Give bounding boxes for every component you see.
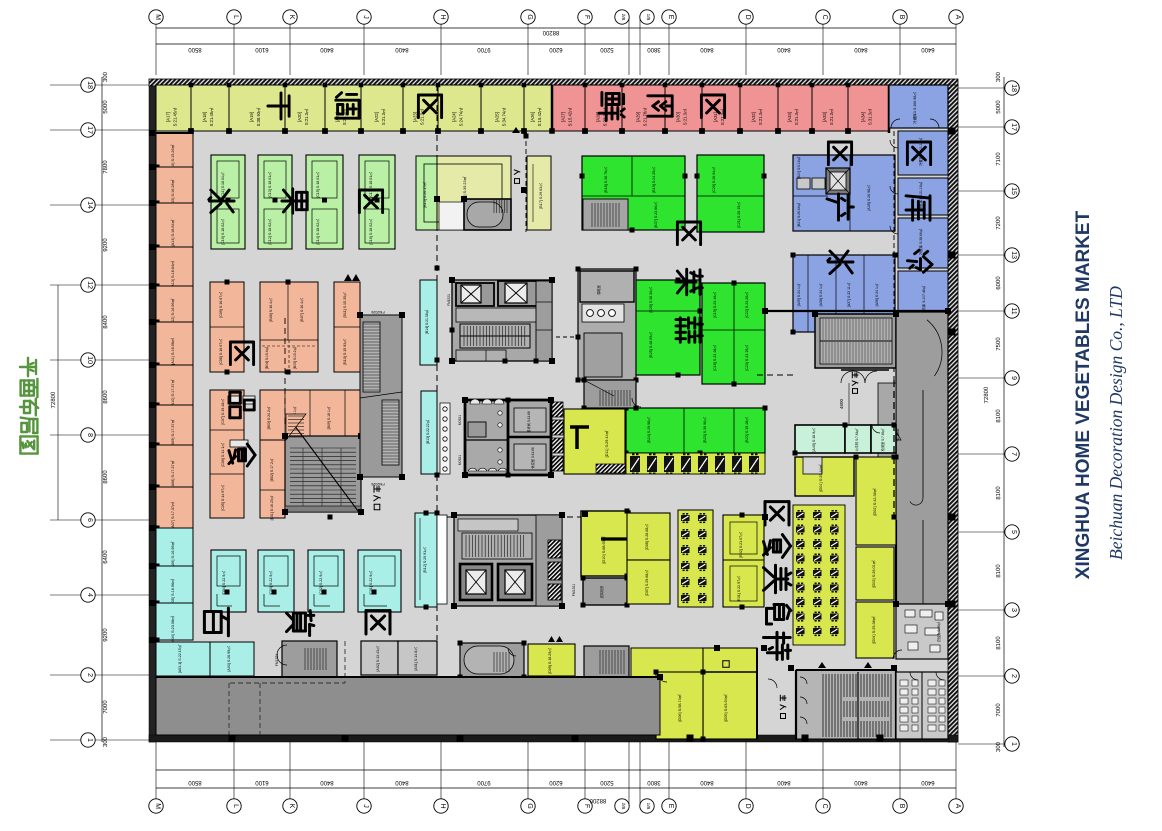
svg-text:6: 6 — [86, 518, 93, 522]
svg-text:S:24.74㎡: S:24.74㎡ — [458, 107, 464, 126]
svg-text:B: B — [898, 804, 905, 809]
svg-text:6400: 6400 — [921, 46, 935, 52]
svg-text:8400: 8400 — [103, 315, 109, 329]
svg-text:S:21.3㎡: S:21.3㎡ — [757, 108, 763, 125]
svg-text:8100: 8100 — [996, 409, 1002, 423]
svg-text:S:15.42㎡: S:15.42㎡ — [536, 107, 542, 126]
svg-text:[A09] S:17.37㎡: [A09] S:17.37㎡ — [170, 419, 175, 446]
svg-text:[A05] S:16.96㎡: [A05] S:16.96㎡ — [170, 579, 175, 606]
svg-text:[B20] S:5.16㎡: [B20] S:5.16㎡ — [796, 156, 801, 179]
svg-text:8600: 8600 — [103, 390, 109, 404]
svg-text:FM1521: FM1521 — [447, 294, 451, 306]
svg-text:送风机房: 送风机房 — [599, 586, 604, 599]
svg-text:S:38.93㎡: S:38.93㎡ — [255, 107, 261, 126]
svg-text:8400: 8400 — [700, 46, 714, 52]
svg-text:[A22]: [A22] — [374, 112, 379, 122]
svg-text:H: H — [439, 803, 446, 808]
svg-text:[D04] S:25.38㎡: [D04] S:25.38㎡ — [871, 616, 876, 643]
svg-text:[A12] S:16.96㎡: [A12] S:16.96㎡ — [170, 298, 175, 325]
svg-text:[D06] S:58.74㎡: [D06] S:58.74㎡ — [677, 694, 682, 721]
svg-text:13: 13 — [1010, 251, 1017, 259]
svg-text:[A32]: [A32] — [751, 112, 756, 122]
svg-text:A: A — [954, 15, 961, 20]
svg-text:[B09] S:18.1㎡: [B09] S:18.1㎡ — [326, 406, 331, 429]
svg-text:A: A — [954, 804, 961, 809]
svg-text:17: 17 — [1010, 123, 1017, 131]
svg-text:L: L — [232, 804, 239, 808]
svg-text:8400: 8400 — [854, 46, 868, 52]
svg-text:[A40] S:18.9㎡: [A40] S:18.9㎡ — [811, 428, 816, 452]
svg-text:9200: 9200 — [103, 238, 109, 252]
svg-text:5200: 5200 — [600, 46, 614, 52]
svg-text:[C10] S:18.02㎡: [C10] S:18.02㎡ — [220, 219, 225, 245]
svg-text:[B04] S:15.4㎡: [B04] S:15.4㎡ — [264, 346, 269, 369]
svg-text:S:21.45㎡: S:21.45㎡ — [208, 107, 214, 126]
svg-text:[A02] S:13.43㎡: [A02] S:13.43㎡ — [375, 646, 380, 672]
svg-text:J: J — [362, 804, 369, 808]
svg-text:18: 18 — [86, 81, 93, 89]
svg-text:冷冻库 S:107.48㎡: 冷冻库 S:107.48㎡ — [921, 285, 926, 314]
svg-text:H: H — [439, 14, 446, 19]
svg-text:S:21.3㎡: S:21.3㎡ — [793, 108, 799, 125]
svg-text:L: L — [232, 15, 239, 19]
svg-text:4600: 4600 — [839, 398, 844, 409]
svg-text:1/B: 1/B — [646, 803, 651, 810]
svg-text:[A23]: [A23] — [413, 112, 418, 122]
svg-text:6200: 6200 — [549, 779, 563, 785]
svg-text:公平秤 S:7.64㎡: 公平秤 S:7.64㎡ — [854, 428, 859, 452]
svg-text:[A14] S:18.64㎡: [A14] S:18.64㎡ — [170, 219, 175, 246]
svg-text:[A15] S:16.28㎡: [A15] S:16.28㎡ — [170, 179, 175, 206]
svg-text:[B24] S:29.98㎡: [B24] S:29.98㎡ — [646, 417, 651, 443]
svg-text:6100: 6100 — [255, 46, 269, 52]
svg-text:[B22] S:15.48㎡: [B22] S:15.48㎡ — [744, 417, 749, 443]
svg-text:总经办 S:36㎡: 总经办 S:36㎡ — [936, 621, 941, 642]
svg-text:[D05] S:63.94㎡: [D05] S:63.94㎡ — [723, 694, 728, 721]
svg-text:[C21] S:26.15㎡: [C21] S:26.15㎡ — [736, 202, 741, 228]
svg-text:D: D — [744, 803, 751, 808]
svg-text:7: 7 — [1010, 452, 1017, 456]
svg-text:8400: 8400 — [777, 779, 791, 785]
svg-text:E: E — [667, 804, 674, 809]
svg-text:[B25] S:48.09㎡: [B25] S:48.09㎡ — [648, 332, 653, 358]
svg-text:FM2026: FM2026 — [371, 482, 384, 486]
svg-text:[A36] S:24.1㎡: [A36] S:24.1㎡ — [874, 283, 879, 306]
svg-text:D: D — [744, 14, 751, 19]
svg-text:[A30]: [A30] — [676, 112, 681, 122]
svg-text:8400: 8400 — [777, 46, 791, 52]
svg-text:[C23] S:23.15㎡: [C23] S:23.15㎡ — [744, 345, 749, 371]
svg-text:8100: 8100 — [996, 564, 1002, 578]
svg-text:[A33]: [A33] — [787, 112, 792, 122]
svg-text:[A37] S:22.11㎡: [A37] S:22.11㎡ — [846, 282, 851, 307]
svg-text:11: 11 — [1010, 307, 1017, 315]
svg-text:15: 15 — [1010, 187, 1017, 195]
svg-text:8: 8 — [86, 433, 93, 437]
svg-text:[A35] S:26.98㎡: [A35] S:26.98㎡ — [866, 185, 871, 211]
svg-text:300: 300 — [103, 71, 109, 82]
svg-text:S:34.74㎡: S:34.74㎡ — [501, 107, 507, 126]
svg-text:1: 1 — [1010, 742, 1017, 746]
svg-text:[D02] S:42.36㎡: [D02] S:42.36㎡ — [872, 488, 877, 515]
svg-text:[A08] S:17.37㎡: [A08] S:17.37㎡ — [170, 460, 175, 487]
svg-text:[B15] S:20.17㎡: [B15] S:20.17㎡ — [422, 182, 427, 208]
svg-text:休息室 S:11.66: 休息室 S:11.66 — [530, 447, 535, 468]
svg-text:[A03-1] S:22.15㎡: [A03-1] S:22.15㎡ — [177, 644, 182, 673]
svg-text:J: J — [362, 15, 369, 19]
svg-text:S:21.45㎡: S:21.45㎡ — [172, 107, 178, 126]
svg-text:72800: 72800 — [51, 391, 58, 409]
svg-text:冷藏库3 S:166.98㎡: 冷藏库3 S:166.98㎡ — [912, 92, 917, 124]
svg-text:[C18] S:23.48㎡: [C18] S:23.48㎡ — [712, 345, 717, 371]
svg-text:[D03] S:26.01㎡: [D03] S:26.01㎡ — [871, 560, 876, 587]
svg-text:[C20] S:26.94㎡: [C20] S:26.94㎡ — [711, 167, 716, 193]
svg-text:[C12] S:18.02㎡: [C12] S:18.02㎡ — [267, 219, 272, 245]
svg-text:7000: 7000 — [103, 700, 109, 714]
svg-text:300: 300 — [103, 736, 109, 747]
svg-text:[A27]: [A27] — [561, 112, 566, 122]
svg-text:K: K — [288, 804, 295, 809]
svg-text:Beichuan Decoration Design Co.: Beichuan Decoration Design Co., LTD — [1106, 286, 1126, 560]
svg-text:72800: 72800 — [984, 386, 991, 404]
svg-text:2/B: 2/B — [621, 14, 626, 21]
svg-text:8400: 8400 — [395, 46, 409, 52]
svg-text:[A11] S:16.96㎡: [A11] S:16.96㎡ — [170, 338, 175, 365]
svg-text:6200: 6200 — [549, 46, 563, 52]
svg-text:300: 300 — [996, 71, 1002, 82]
svg-text:[A04] S:23.08㎡: [A04] S:23.08㎡ — [170, 616, 175, 643]
svg-text:F: F — [583, 15, 590, 20]
svg-text:[A19]: [A19] — [249, 112, 254, 122]
svg-text:[C22] S:23.26㎡: [C22] S:23.26㎡ — [744, 292, 749, 318]
svg-text:[B11] S:15.35㎡: [B11] S:15.35㎡ — [342, 292, 347, 318]
svg-text:7200: 7200 — [996, 216, 1002, 230]
svg-text:[A20]: [A20] — [297, 112, 302, 122]
svg-text:7500: 7500 — [996, 337, 1002, 351]
svg-text:S:21.3㎡: S:21.3㎡ — [380, 108, 386, 125]
svg-text:[D10] S:68.95㎡: [D10] S:68.95㎡ — [601, 536, 606, 563]
svg-text:[D07] S:29.68㎡: [D07] S:29.68㎡ — [644, 570, 649, 596]
svg-text:[A03] S:28.99㎡: [A03] S:28.99㎡ — [226, 646, 231, 672]
svg-text:2: 2 — [86, 673, 93, 677]
svg-text:9: 9 — [1010, 376, 1017, 380]
svg-text:[A06] S:16.96㎡: [A06] S:16.96㎡ — [170, 541, 175, 568]
svg-text:6000: 6000 — [996, 276, 1002, 290]
svg-text:5000: 5000 — [103, 100, 109, 114]
svg-text:B: B — [898, 15, 905, 20]
svg-text:5: 5 — [1010, 530, 1017, 534]
svg-text:[A18]: [A18] — [202, 112, 207, 122]
svg-text:淮考间 S:11.68: 淮考间 S:11.68 — [526, 411, 531, 432]
svg-text:[A29]: [A29] — [636, 112, 641, 122]
svg-text:[C05] S:14.97㎡: [C05] S:14.97㎡ — [220, 485, 225, 511]
svg-text:[C15] S:18.01㎡: [C15] S:18.01㎡ — [315, 172, 320, 198]
svg-text:M0921: M0921 — [458, 455, 462, 465]
svg-text:3800: 3800 — [647, 46, 661, 52]
svg-text:8400: 8400 — [700, 779, 714, 785]
svg-text:FM1521: FM1521 — [275, 654, 279, 667]
svg-text:8400: 8400 — [395, 779, 409, 785]
svg-text:C: C — [821, 14, 828, 19]
svg-text:[B17] S:29.63㎡: [B17] S:29.63㎡ — [538, 183, 543, 209]
svg-text:2: 2 — [1010, 674, 1017, 678]
svg-text:[A10] S:17.37㎡: [A10] S:17.37㎡ — [170, 379, 175, 406]
svg-text:8400: 8400 — [320, 46, 334, 52]
svg-text:[B07] S:16.4㎡: [B07] S:16.4㎡ — [299, 298, 304, 322]
svg-text:[C16] S:18.02㎡: [C16] S:18.02㎡ — [368, 219, 373, 245]
svg-text:7000: 7000 — [996, 703, 1002, 717]
svg-text:88200: 88200 — [589, 797, 606, 803]
svg-text:6400: 6400 — [921, 779, 935, 785]
svg-text:[A31]: [A31] — [713, 112, 718, 122]
svg-text:G: G — [526, 803, 533, 809]
svg-text:300: 300 — [996, 741, 1002, 752]
svg-text:F: F — [583, 804, 590, 809]
svg-text:1/B: 1/B — [646, 14, 651, 21]
svg-text:88200: 88200 — [542, 29, 559, 35]
svg-text:弱电室: 弱电室 — [596, 285, 601, 295]
svg-text:2/B: 2/B — [621, 803, 626, 810]
svg-text:[A13] S:18.64㎡: [A13] S:18.64㎡ — [170, 261, 175, 288]
svg-text:8400: 8400 — [320, 779, 334, 785]
svg-text:7800: 7800 — [103, 160, 109, 174]
svg-text:18: 18 — [1010, 84, 1017, 92]
svg-text:10: 10 — [86, 356, 93, 364]
svg-text:[B03] S:24.2㎡: [B03] S:24.2㎡ — [266, 406, 271, 429]
svg-text:[C06] S:14.1㎡: [C06] S:14.1㎡ — [220, 443, 225, 467]
svg-text:8100: 8100 — [996, 486, 1002, 500]
svg-text:9700: 9700 — [477, 46, 491, 52]
svg-text:[B06] S:16.4㎡: [B06] S:16.4㎡ — [268, 298, 273, 322]
svg-text:3800: 3800 — [647, 779, 661, 785]
svg-text:[A17]: [A17] — [166, 112, 171, 122]
svg-text:[A07] S:17.37㎡: [A07] S:17.37㎡ — [170, 502, 175, 529]
svg-text:C: C — [821, 803, 828, 808]
svg-text:[C08] S:16.67㎡: [C08] S:16.67㎡ — [218, 339, 223, 365]
svg-text:[A01] S:14.8㎡: [A01] S:14.8㎡ — [413, 647, 418, 671]
svg-text:S:31.3㎡: S:31.3㎡ — [867, 108, 873, 125]
svg-text:[C07] S:19.48㎡: [C07] S:19.48㎡ — [220, 399, 225, 425]
svg-text:[D08] S:28.68㎡: [D08] S:28.68㎡ — [644, 524, 649, 550]
svg-text:[B14] S:21.38㎡: [B14] S:21.38㎡ — [424, 309, 429, 334]
svg-text:[A38] S:24.1㎡: [A38] S:24.1㎡ — [818, 283, 823, 306]
svg-text:8100: 8100 — [996, 636, 1002, 650]
svg-text:8400: 8400 — [854, 779, 868, 785]
svg-text:[B37] S:23.66㎡: [B37] S:23.66㎡ — [653, 202, 658, 228]
svg-text:[B19] S:24.25㎡: [B19] S:24.25㎡ — [651, 167, 656, 193]
svg-text:S:21.3㎡: S:21.3㎡ — [828, 108, 834, 125]
svg-text:[B02] S:17.2㎡: [B02] S:17.2㎡ — [269, 458, 274, 481]
svg-text:7100: 7100 — [996, 152, 1002, 166]
svg-text:[C19] S:23.46㎡: [C19] S:23.46㎡ — [712, 292, 717, 318]
svg-text:[B21] S:26.64㎡: [B21] S:26.64㎡ — [796, 202, 801, 227]
svg-text:[A24]: [A24] — [452, 112, 457, 122]
svg-text:[A26]: [A26] — [530, 112, 535, 122]
svg-text:9700: 9700 — [477, 779, 491, 785]
svg-text:[A39] S:24.1㎡: [A39] S:24.1㎡ — [796, 283, 801, 306]
svg-text:E: E — [667, 15, 674, 20]
svg-text:G: G — [526, 14, 533, 20]
svg-text:[E01] S:22.97㎡: [E01] S:22.97㎡ — [736, 576, 741, 602]
svg-text:1: 1 — [86, 738, 93, 742]
svg-text:[A25]: [A25] — [495, 112, 500, 122]
svg-text:8600: 8600 — [103, 470, 109, 484]
svg-text:[C09] S:16.67㎡: [C09] S:16.67㎡ — [218, 292, 223, 318]
svg-text:[A34]: [A34] — [861, 112, 866, 122]
svg-text:[C17] S:18.01㎡: [C17] S:18.01㎡ — [368, 172, 373, 198]
svg-text:6100: 6100 — [255, 779, 269, 785]
svg-text:6400: 6400 — [103, 550, 109, 564]
svg-text:8500: 8500 — [188, 46, 202, 52]
svg-text:[B05] S:15.2㎡: [B05] S:15.2㎡ — [292, 346, 297, 369]
svg-text:[A33]: [A33] — [822, 112, 827, 122]
svg-text:[C11] S:18.01㎡: [C11] S:18.01㎡ — [220, 172, 225, 198]
svg-text:K: K — [288, 15, 295, 20]
svg-text:检测室 S:7.69㎡: 检测室 S:7.69㎡ — [880, 428, 885, 452]
svg-text:[D09] S:18.29㎡: [D09] S:18.29㎡ — [547, 648, 552, 674]
svg-text:[B13] S:22.22㎡: [B13] S:22.22㎡ — [425, 419, 430, 444]
svg-text:17: 17 — [86, 126, 93, 134]
svg-text:[B01] S:16.23㎡: [B01] S:16.23㎡ — [269, 495, 274, 520]
svg-text:[C14] S:18.02㎡: [C14] S:18.02㎡ — [315, 219, 320, 245]
svg-text:[B23] S:30.90㎡: [B23] S:30.90㎡ — [702, 417, 707, 443]
svg-text:M: M — [154, 803, 161, 809]
svg-text:[B26] S:38.36㎡: [B26] S:38.36㎡ — [648, 287, 653, 313]
svg-text:XINGHUA HOME VEGETABLES MARKET: XINGHUA HOME VEGETABLES MARKET — [1073, 210, 1094, 579]
svg-text:[B10] S:15.93㎡: [B10] S:15.93㎡ — [342, 339, 347, 365]
svg-text:[B12] S:20.91㎡: [B12] S:20.91㎡ — [422, 547, 427, 573]
svg-text:[E02] S:21.07㎡: [E02] S:21.07㎡ — [738, 532, 743, 558]
svg-text:[D01] S:25.44㎡: [D01] S:25.44㎡ — [818, 464, 823, 491]
svg-text:8500: 8500 — [188, 779, 202, 785]
svg-text:14: 14 — [86, 201, 93, 209]
svg-text:S:21.3㎡: S:21.3㎡ — [682, 108, 688, 125]
svg-text:FM2026: FM2026 — [371, 310, 384, 314]
svg-text:3: 3 — [1010, 608, 1017, 612]
svg-text:4: 4 — [86, 593, 93, 597]
svg-text:S:15.42㎡: S:15.42㎡ — [567, 107, 573, 126]
svg-text:M0921: M0921 — [458, 415, 462, 425]
svg-text:M: M — [154, 14, 161, 20]
svg-text:[B18] S:36.76㎡: [B18] S:36.76㎡ — [603, 167, 608, 193]
svg-text:5200: 5200 — [600, 779, 614, 785]
svg-text:[C13] S:18.01㎡: [C13] S:18.01㎡ — [267, 172, 272, 198]
svg-text:[D11] S:29.44㎡: [D11] S:29.44㎡ — [604, 430, 609, 457]
svg-text:12: 12 — [86, 281, 93, 289]
svg-text:FM1521: FM1521 — [572, 584, 576, 597]
svg-text:9200: 9200 — [103, 628, 109, 642]
svg-text:S:21.3㎡: S:21.3㎡ — [303, 108, 309, 125]
svg-text:5000: 5000 — [996, 100, 1002, 114]
